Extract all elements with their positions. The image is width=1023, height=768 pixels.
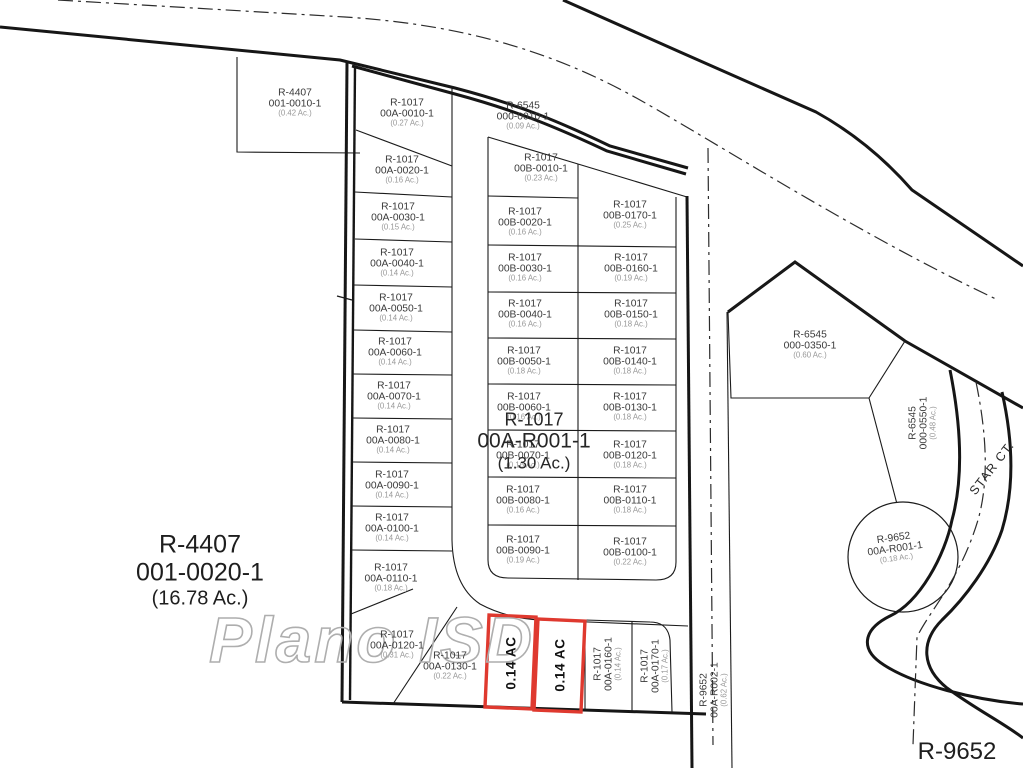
highlighted-lot-2[interactable] bbox=[534, 619, 585, 712]
parcel-boundary-001-0010-1 bbox=[237, 57, 360, 153]
lot-line bbox=[353, 462, 452, 463]
street-west-south-edge bbox=[452, 86, 688, 626]
plat-map: Plano ISD R-4407001-0010-1(0.42 Ac.)R-65… bbox=[0, 0, 1023, 768]
inner-street-loop-edge bbox=[488, 137, 676, 580]
lot-line bbox=[488, 384, 676, 385]
parcel-boundary-000-0350-1 bbox=[728, 262, 905, 398]
culdesac-circle bbox=[848, 502, 958, 612]
corridor-centerline bbox=[708, 148, 713, 745]
lot-line bbox=[488, 338, 676, 339]
lot-line bbox=[355, 239, 452, 242]
block-east-boundary bbox=[687, 196, 692, 768]
road-edge-north bbox=[563, 0, 1023, 266]
corridor-east-edge bbox=[727, 312, 732, 768]
lot-line bbox=[488, 525, 676, 526]
lot-line bbox=[488, 245, 676, 247]
lot-line bbox=[488, 196, 578, 198]
lot-line bbox=[488, 430, 676, 431]
lot-line bbox=[585, 620, 672, 712]
lot-line bbox=[352, 506, 452, 507]
lot-line bbox=[488, 137, 578, 164]
road-edge-south-east bbox=[728, 262, 1023, 408]
lot-line bbox=[353, 418, 452, 419]
watermark: Plano ISD bbox=[209, 604, 535, 676]
road-edge-south-outer bbox=[0, 27, 688, 168]
lot-line bbox=[354, 330, 452, 332]
lot-line bbox=[353, 374, 452, 375]
lot-line bbox=[356, 130, 452, 166]
map-linework: Plano ISD bbox=[0, 0, 1023, 768]
lot-line bbox=[869, 398, 897, 504]
lot-line bbox=[488, 292, 676, 293]
lot-line bbox=[352, 550, 452, 551]
lot-line bbox=[488, 477, 676, 478]
lot-line bbox=[355, 192, 452, 197]
road-edge-south-inner bbox=[352, 66, 686, 174]
lot-line bbox=[354, 285, 452, 287]
